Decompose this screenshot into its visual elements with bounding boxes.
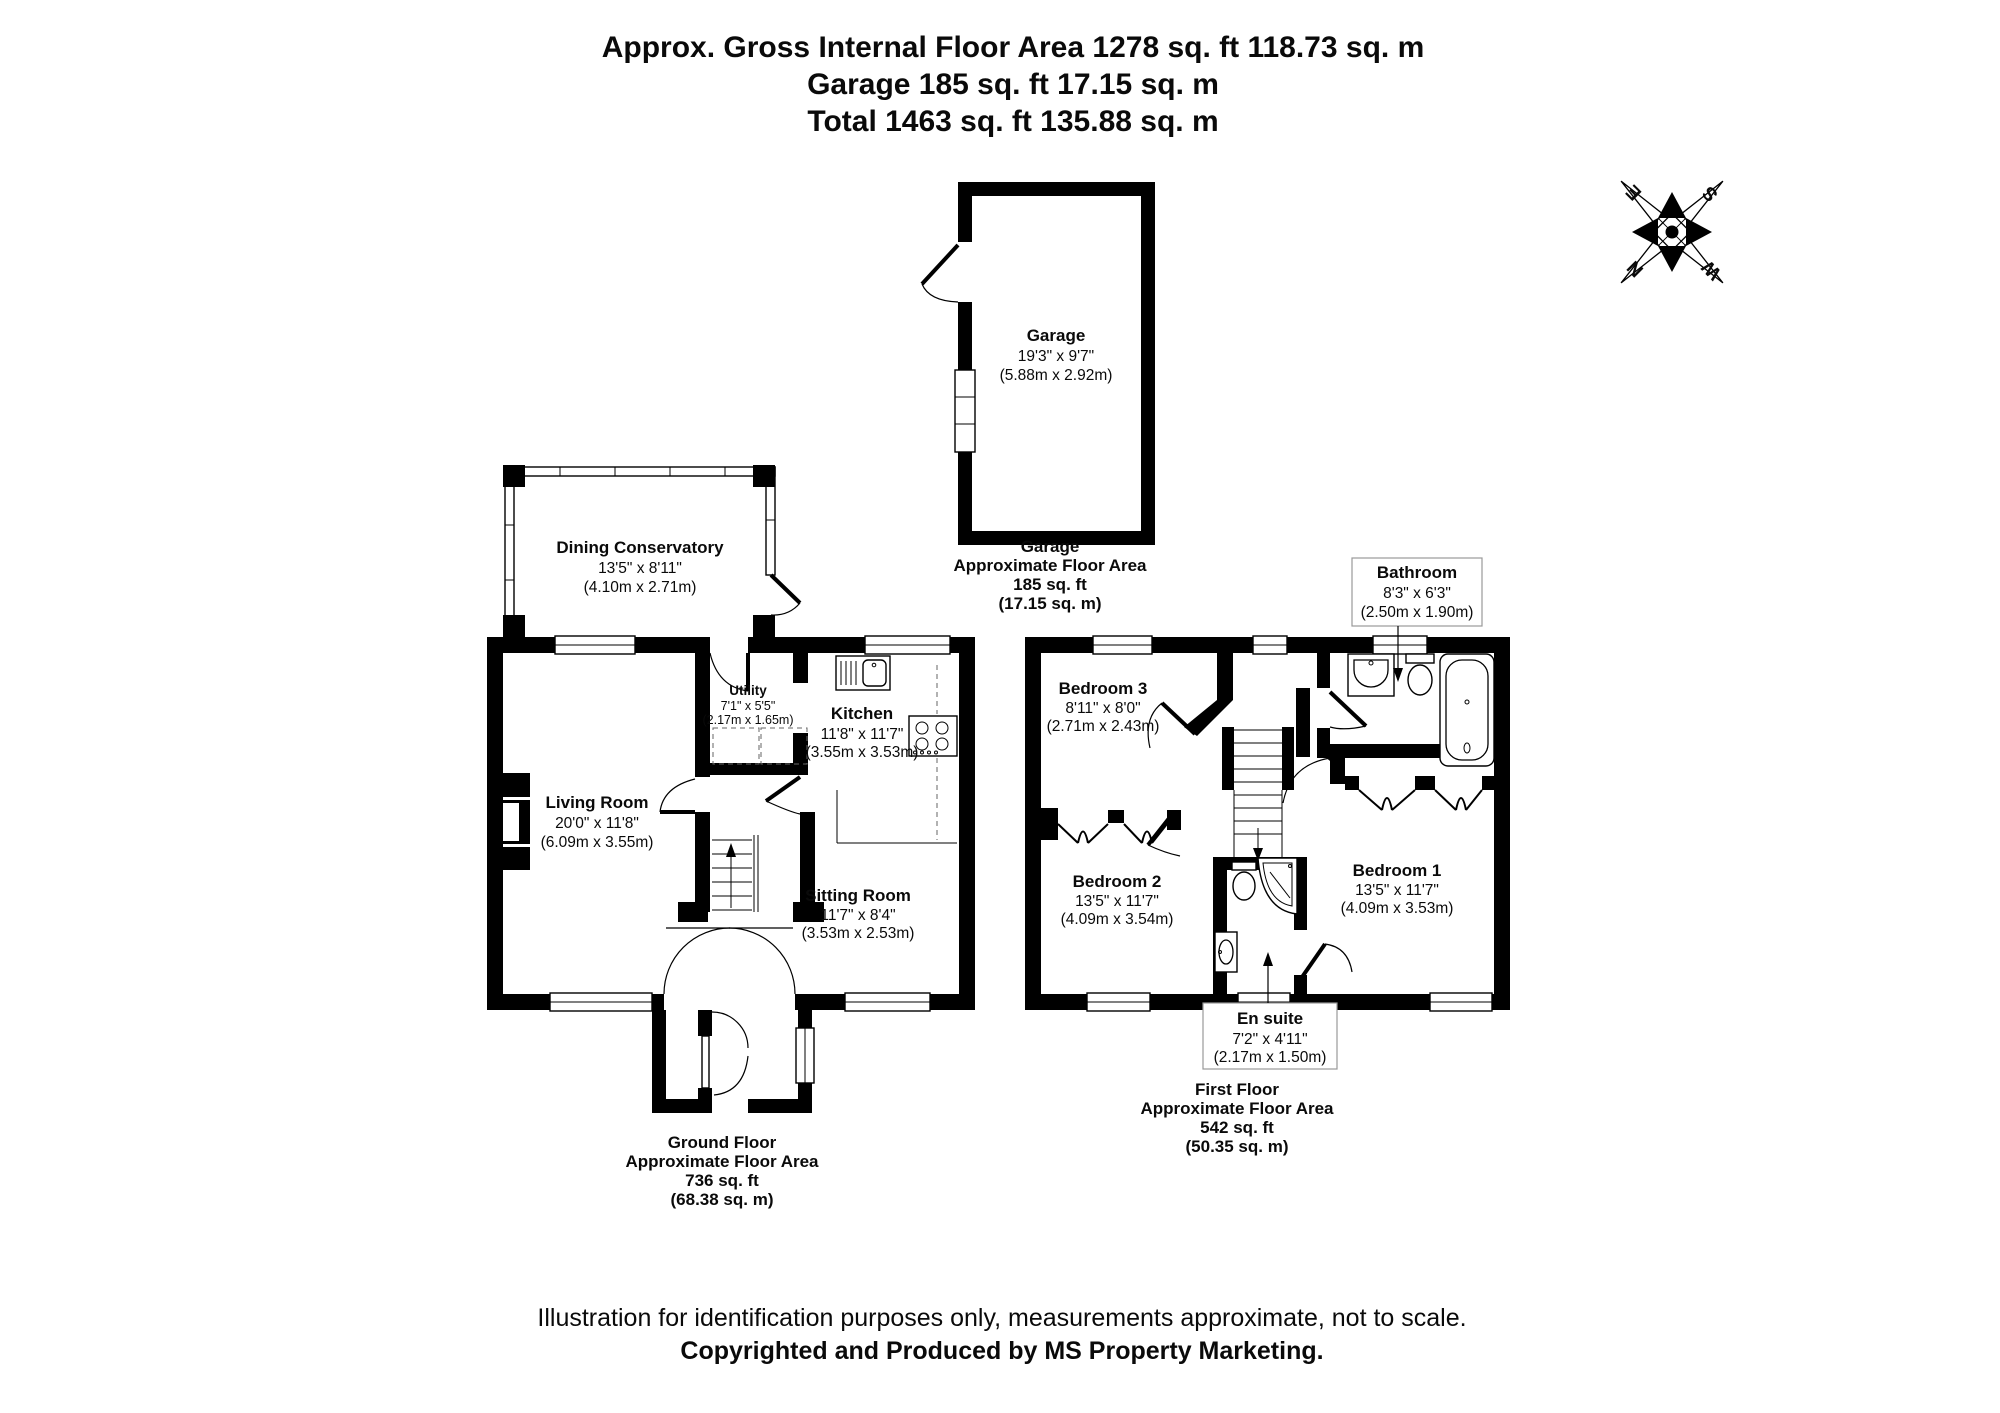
wall-segment bbox=[1025, 994, 1087, 1010]
kitchen-sink bbox=[836, 656, 890, 690]
area-subtitle: Approximate Floor Area bbox=[1140, 1099, 1334, 1118]
wall-segment bbox=[1152, 637, 1253, 653]
utility-appliances bbox=[713, 728, 807, 764]
bathtub bbox=[1440, 654, 1494, 766]
toilet-cistern bbox=[1232, 862, 1256, 870]
glazed-wall bbox=[505, 467, 775, 476]
wall-joint bbox=[503, 844, 530, 847]
door-leaf bbox=[922, 245, 958, 284]
glazed-wall bbox=[505, 467, 514, 637]
room-dims-metric: (3.55m x 3.53m) bbox=[806, 744, 919, 761]
compass-triangle bbox=[1632, 218, 1658, 246]
wall-segment bbox=[1217, 653, 1233, 700]
ground-floor-plan: Dining Conservatory 13'5" x 8'11" (4.10m… bbox=[487, 465, 975, 1209]
wall-segment bbox=[1287, 637, 1373, 653]
fireplace-recess bbox=[503, 803, 519, 841]
room-dims-imperial: 19'3" x 9'7" bbox=[1018, 348, 1094, 365]
conservatory-door bbox=[771, 575, 800, 615]
wall-segment bbox=[1317, 653, 1330, 688]
room-dims-imperial: 13'5" x 11'7" bbox=[1355, 882, 1439, 899]
garage-door bbox=[922, 245, 958, 302]
first-floor-plan: Bedroom 3 8'11" x 8'0" (2.71m x 2.43m) B… bbox=[1025, 558, 1510, 1156]
door-arc bbox=[729, 928, 795, 994]
door-arc bbox=[1148, 845, 1180, 856]
wall-segment bbox=[930, 994, 975, 1010]
ensuite-toilet bbox=[1232, 862, 1256, 900]
wall-segment bbox=[487, 994, 550, 1010]
door-arc bbox=[922, 284, 958, 302]
wall-segment bbox=[958, 182, 1155, 196]
header: Approx. Gross Internal Floor Area 1278 s… bbox=[602, 31, 1425, 138]
compass-label-e: E bbox=[1622, 180, 1646, 204]
door-arc bbox=[771, 603, 800, 615]
area-title: Garage bbox=[1021, 537, 1080, 556]
wall-joint bbox=[503, 797, 530, 800]
room-dims-metric: (4.09m x 3.54m) bbox=[1061, 911, 1174, 928]
room-dims-metric: (4.10m x 2.71m) bbox=[584, 579, 697, 596]
corner-post bbox=[503, 465, 525, 487]
area-title: First Floor bbox=[1195, 1080, 1279, 1099]
wall-segment bbox=[678, 902, 708, 922]
area-subtitle: Approximate Floor Area bbox=[953, 556, 1147, 575]
compass-label-s: S bbox=[1699, 182, 1723, 206]
room-label-utility: Utility 7'1" x 5'5" (2.17m x 1.65m) bbox=[702, 683, 793, 727]
wall-segment bbox=[959, 637, 975, 1010]
room-label-living-room: Living Room 20'0" x 11'8" (6.09m x 3.55m… bbox=[541, 793, 654, 851]
room-dims-imperial: 20'0" x 11'8" bbox=[555, 815, 639, 832]
door-arc bbox=[664, 928, 730, 994]
room-name: Kitchen bbox=[831, 704, 893, 723]
wall-segment bbox=[958, 302, 972, 370]
door-arc bbox=[660, 779, 695, 812]
area-metric: (17.15 sq. m) bbox=[999, 594, 1102, 613]
area-imperial: 542 sq. ft bbox=[1200, 1118, 1274, 1137]
wall-segment bbox=[695, 763, 808, 775]
door-arc bbox=[766, 801, 800, 814]
bathroom-door bbox=[1330, 692, 1366, 729]
room-dims-imperial: 13'5" x 11'7" bbox=[1075, 893, 1159, 910]
compass-rose: N E S W bbox=[1570, 130, 1774, 334]
door-arc bbox=[714, 1056, 748, 1095]
wardrobe-zigzag bbox=[1435, 790, 1482, 810]
room-dims-metric: (2.17m x 1.50m) bbox=[1214, 1049, 1327, 1066]
room-name: Sitting Room bbox=[805, 886, 911, 905]
wall-segment bbox=[1492, 994, 1510, 1010]
room-dims-imperial: 13'5" x 8'11" bbox=[598, 560, 682, 577]
compass-label-n: N bbox=[1623, 256, 1648, 281]
wardrobe-zigzag bbox=[1359, 790, 1415, 810]
room-label-garage: Garage 19'3" x 9'7" (5.88m x 2.92m) bbox=[1000, 326, 1113, 384]
wall-segment bbox=[793, 653, 808, 683]
room-name: Bedroom 3 bbox=[1059, 679, 1148, 698]
room-dims-imperial: 11'8" x 11'7" bbox=[821, 726, 904, 743]
toilet-bowl bbox=[1233, 872, 1255, 900]
living-room-door bbox=[660, 779, 695, 812]
stairs-first-floor bbox=[1234, 730, 1282, 861]
compass-label-w: W bbox=[1698, 256, 1726, 284]
stair-up-arrow bbox=[726, 843, 736, 857]
garage-plan: Garage 19'3" x 9'7" (5.88m x 2.92m) Gara… bbox=[922, 182, 1155, 613]
wall-segment bbox=[652, 994, 664, 1010]
toilet-cistern bbox=[1406, 654, 1434, 663]
door-arc bbox=[1330, 726, 1366, 729]
door-arc bbox=[1325, 944, 1352, 972]
sitting-room-door bbox=[766, 777, 800, 814]
wall-segment bbox=[798, 1010, 812, 1028]
ensuite-sink bbox=[1215, 932, 1237, 972]
wall-segment bbox=[635, 637, 710, 653]
door-leaf bbox=[771, 575, 800, 603]
door-arc bbox=[712, 1012, 748, 1048]
appliance-outline bbox=[713, 728, 759, 764]
garage-area-label: Garage Approximate Floor Area 185 sq. ft… bbox=[953, 537, 1147, 613]
room-label-bedroom-2: Bedroom 2 13'5" x 11'7" (4.09m x 3.54m) bbox=[1061, 872, 1174, 928]
wall-segment bbox=[695, 812, 710, 912]
chimney-breast bbox=[1041, 808, 1058, 840]
window bbox=[955, 370, 975, 452]
area-metric: (68.38 sq. m) bbox=[671, 1190, 774, 1209]
corner-post bbox=[753, 615, 775, 637]
door-leaf bbox=[1162, 703, 1195, 734]
stair-wall bbox=[1222, 727, 1234, 790]
room-label-bedroom-3: Bedroom 3 8'11" x 8'0" (2.71m x 2.43m) bbox=[1047, 679, 1160, 735]
room-dims-metric: (2.71m x 2.43m) bbox=[1047, 718, 1160, 735]
wall-segment bbox=[698, 1088, 712, 1099]
room-dims-imperial: 8'11" x 8'0" bbox=[1065, 700, 1140, 717]
porch-structure bbox=[652, 1010, 814, 1113]
wall-segment bbox=[1141, 182, 1155, 545]
callout-arrow bbox=[1263, 952, 1273, 966]
header-line-3: Total 1463 sq. ft 135.88 sq. m bbox=[807, 105, 1218, 138]
wall-segment bbox=[798, 1083, 812, 1113]
room-dims-metric: (2.17m x 1.65m) bbox=[702, 713, 793, 727]
disclaimer-line-2: Copyrighted and Produced by MS Property … bbox=[680, 1337, 1323, 1365]
wall-segment bbox=[795, 994, 845, 1010]
compass-triangle bbox=[1658, 192, 1686, 218]
area-subtitle: Approximate Floor Area bbox=[625, 1152, 819, 1171]
area-imperial: 736 sq. ft bbox=[685, 1171, 759, 1190]
toilet-bowl bbox=[1408, 665, 1432, 695]
room-dims-metric: (4.09m x 3.53m) bbox=[1341, 900, 1454, 917]
ground-floor-area-label: Ground Floor Approximate Floor Area 736 … bbox=[625, 1133, 819, 1209]
wall-segment bbox=[487, 637, 503, 1010]
door-leaf bbox=[766, 777, 800, 801]
room-name: Garage bbox=[1027, 326, 1086, 345]
wardrobe-zigzag bbox=[1058, 824, 1108, 843]
wall-segment bbox=[652, 1099, 712, 1113]
wall-segment bbox=[652, 1010, 666, 1113]
room-dims-imperial: 7'1" x 5'5" bbox=[721, 699, 776, 713]
room-dims-metric: (2.50m x 1.90m) bbox=[1361, 604, 1474, 621]
front-double-doors bbox=[664, 928, 795, 994]
wall-segment bbox=[1415, 776, 1435, 790]
ensuite-shower bbox=[1258, 858, 1297, 914]
first-floor-area-label: First Floor Approximate Floor Area 542 s… bbox=[1140, 1080, 1334, 1156]
wall-segment bbox=[1494, 637, 1510, 1010]
room-label-kitchen: Kitchen 11'8" x 11'7" (3.55m x 3.53m) bbox=[806, 704, 919, 761]
corner-post bbox=[503, 615, 525, 637]
room-dims-imperial: 8'3" x 6'3" bbox=[1383, 585, 1451, 602]
area-metric: (50.35 sq. m) bbox=[1186, 1137, 1289, 1156]
glazed-partition bbox=[702, 1036, 709, 1088]
wall-segment bbox=[698, 1010, 712, 1036]
wall-segment bbox=[1213, 857, 1227, 994]
wall-segment bbox=[1345, 776, 1359, 790]
room-label-dining-conservatory: Dining Conservatory 13'5" x 8'11" (4.10m… bbox=[556, 538, 724, 596]
room-dims-metric: (5.88m x 2.92m) bbox=[1000, 367, 1113, 384]
room-name: Bedroom 1 bbox=[1353, 861, 1442, 880]
compass-triangle bbox=[1686, 218, 1712, 246]
room-name: Bedroom 2 bbox=[1073, 872, 1162, 891]
wall-segment bbox=[793, 902, 824, 922]
room-name: Living Room bbox=[546, 793, 649, 812]
disclaimer-line-1: Illustration for identification purposes… bbox=[537, 1304, 1466, 1332]
door-leaf bbox=[1330, 692, 1366, 726]
bathroom-sink bbox=[1348, 654, 1394, 696]
bathroom-toilet bbox=[1406, 654, 1434, 695]
garage-window bbox=[955, 370, 975, 452]
wall-segment bbox=[958, 182, 972, 242]
room-name: En suite bbox=[1237, 1009, 1303, 1028]
room-dims-metric: (6.09m x 3.55m) bbox=[541, 834, 654, 851]
first-floor-windows bbox=[1087, 636, 1492, 1011]
room-label-bedroom-1: Bedroom 1 13'5" x 11'7" (4.09m x 3.53m) bbox=[1341, 861, 1454, 917]
header-line-2: Garage 185 sq. ft 17.15 sq. m bbox=[807, 68, 1219, 101]
wall-segment bbox=[1025, 808, 1041, 842]
area-title: Ground Floor bbox=[668, 1133, 777, 1152]
room-name: Dining Conservatory bbox=[556, 538, 724, 557]
room-dims-imperial: 7'2" x 4'11" bbox=[1232, 1031, 1307, 1048]
wall-segment bbox=[1482, 776, 1494, 790]
room-name: Utility bbox=[729, 683, 767, 698]
corner-post bbox=[753, 465, 775, 487]
floorplan-drawing: Approx. Gross Internal Floor Area 1278 s… bbox=[0, 0, 2000, 1413]
disclaimer: Illustration for identification purposes… bbox=[537, 1304, 1466, 1365]
wall-segment bbox=[958, 452, 972, 545]
bath-outer bbox=[1440, 654, 1494, 766]
area-imperial: 185 sq. ft bbox=[1013, 575, 1087, 594]
wall-segment bbox=[748, 637, 865, 653]
ensuite-door bbox=[1300, 944, 1352, 980]
door-leaf bbox=[1300, 944, 1325, 980]
wall-segment bbox=[1330, 744, 1345, 784]
wall-segment bbox=[1296, 688, 1310, 757]
room-dims-imperial: 11'7" x 8'4" bbox=[820, 907, 895, 924]
floorplan-page: Approx. Gross Internal Floor Area 1278 s… bbox=[0, 0, 2000, 1413]
room-name: Bathroom bbox=[1377, 563, 1457, 582]
header-line-1: Approx. Gross Internal Floor Area 1278 s… bbox=[602, 31, 1425, 64]
wall-segment bbox=[1108, 810, 1124, 823]
stairs-ground-floor bbox=[712, 835, 758, 912]
compass-triangle bbox=[1658, 246, 1686, 272]
room-dims-metric: (3.53m x 2.53m) bbox=[802, 925, 915, 942]
sink-basin bbox=[863, 660, 886, 686]
